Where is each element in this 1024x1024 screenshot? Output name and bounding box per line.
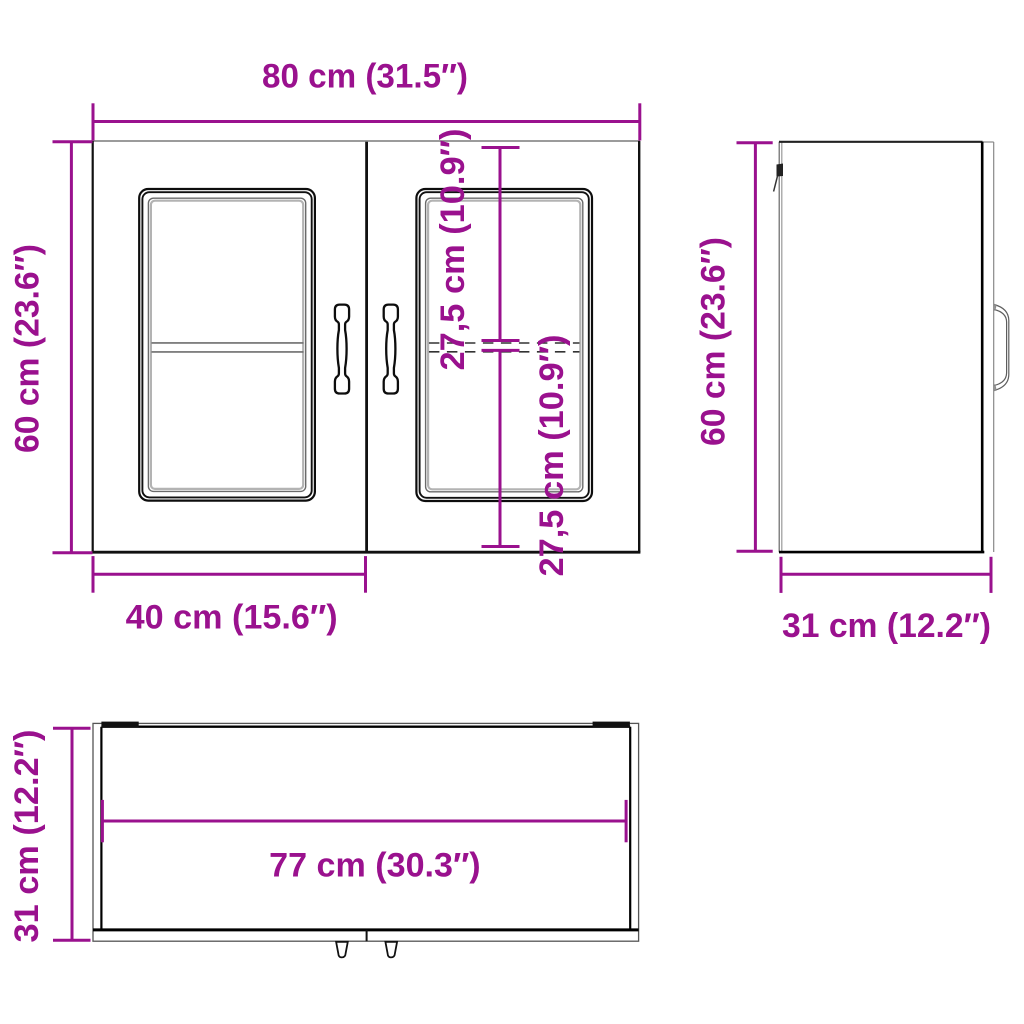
svg-text:27,5 cm (10.9″): 27,5 cm (10.9″) <box>533 335 571 577</box>
svg-text:80 cm (31.5″): 80 cm (31.5″) <box>262 58 468 96</box>
svg-text:31 cm (12.2″): 31 cm (12.2″) <box>8 730 46 943</box>
svg-text:60 cm (23.6″): 60 cm (23.6″) <box>695 237 733 446</box>
svg-text:40 cm (15.6″): 40 cm (15.6″) <box>126 599 338 637</box>
svg-text:31 cm (12.2″): 31 cm (12.2″) <box>782 607 991 645</box>
svg-text:27,5 cm (10.9″): 27,5 cm (10.9″) <box>434 129 472 371</box>
svg-text:60 cm (23.6″): 60 cm (23.6″) <box>8 244 46 453</box>
svg-text:77 cm (30.3″): 77 cm (30.3″) <box>269 846 481 884</box>
